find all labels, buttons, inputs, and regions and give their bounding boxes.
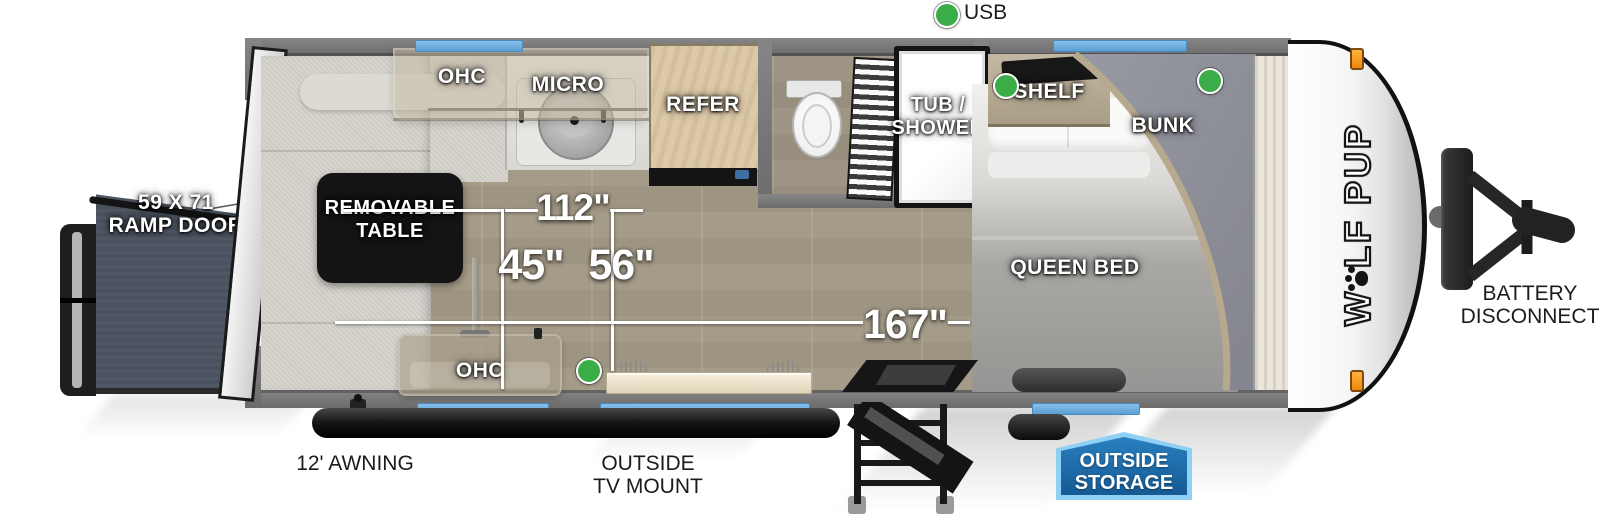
clearance-light-icon <box>1350 48 1364 70</box>
awning-roll <box>312 408 840 438</box>
bunk-label: BUNK <box>1118 114 1208 137</box>
tv-console <box>606 372 812 394</box>
bathroom-wall-left <box>758 38 772 208</box>
rv-floorplan: 59 X 71RAMP DOOR REMOVABLETABLE OHC MICR… <box>0 0 1600 532</box>
ramp-door-edge-frame <box>60 224 96 396</box>
usb-indicator-icon <box>1197 68 1223 94</box>
window <box>1053 40 1187 52</box>
front-wall-panel <box>1253 56 1293 390</box>
entry-steps <box>840 402 1010 522</box>
usb-legend-label: USB <box>964 1 1024 24</box>
dim-167: 167" <box>845 301 965 348</box>
dim-line-167 <box>335 321 863 324</box>
ohc-rear-label: OHC <box>425 65 499 88</box>
dim-line-56 <box>611 209 614 371</box>
paw-print-icon <box>1355 271 1368 286</box>
dim-line-112 <box>343 209 503 212</box>
removable-table-label: REMOVABLETABLE <box>317 197 463 243</box>
refer-label: REFER <box>651 93 755 116</box>
logo-prefix: W <box>1337 289 1379 326</box>
window <box>415 40 523 52</box>
a-frame-hitch <box>1465 150 1595 300</box>
outside-storage-label: OUTSIDESTORAGE <box>1056 450 1192 494</box>
dim-line-45 <box>501 209 504 389</box>
usb-legend-icon <box>934 2 960 28</box>
tv-mount-label: OUTSIDETV MOUNT <box>583 452 713 498</box>
usb-indicator-icon <box>576 358 602 384</box>
logo-suffix: LF PUP <box>1337 122 1379 268</box>
ohc-front-label: OHC <box>398 359 562 382</box>
awning-label: 12' AWNING <box>280 452 430 475</box>
bunk <box>1060 50 1260 394</box>
stabilizer-tube <box>1008 414 1070 440</box>
micro-label: MICRO <box>523 73 613 96</box>
usb-indicator-icon <box>993 73 1019 99</box>
dim-56: 56" <box>561 241 681 290</box>
wolf-pup-logo: WLF PUP <box>1340 69 1376 379</box>
step-door-panel <box>847 402 973 494</box>
battery-disconnect-label: BATTERYDISCONNECT <box>1440 282 1600 328</box>
dim-112: 112" <box>513 187 633 229</box>
